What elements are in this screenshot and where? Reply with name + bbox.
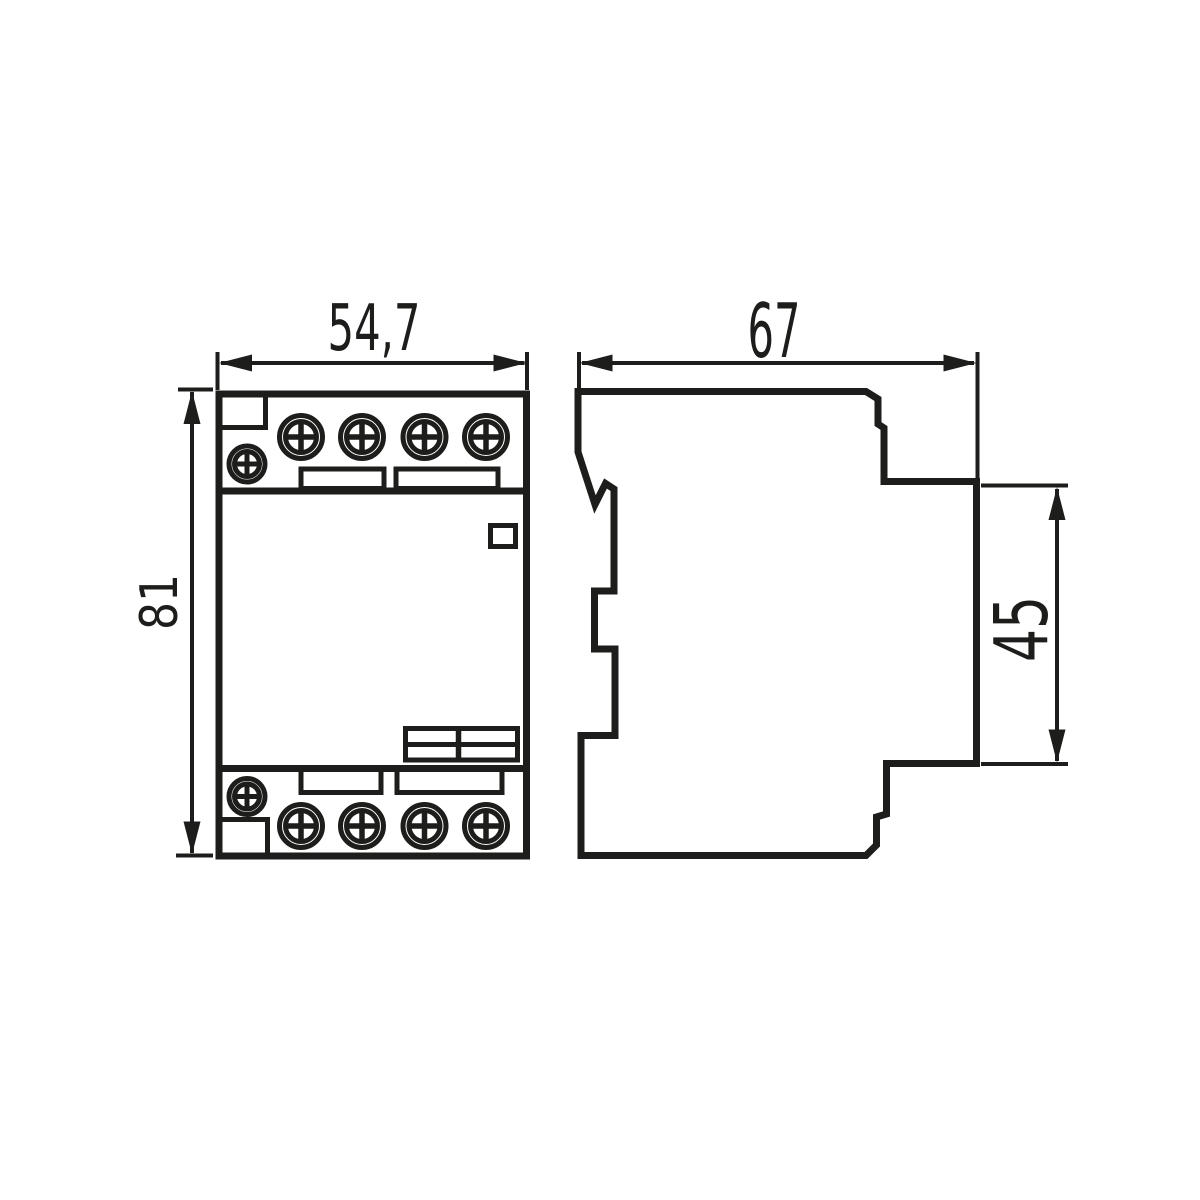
dim-label-rear-height: 45 bbox=[979, 596, 1065, 662]
side-profile-outline bbox=[578, 392, 977, 856]
top-terminal-screws bbox=[280, 416, 508, 459]
dim-label-front-height: 81 bbox=[130, 574, 190, 630]
dimension-side-depth: 67 bbox=[579, 287, 978, 481]
terminal-screw-icon bbox=[280, 416, 323, 459]
drawing-canvas: 54,7 81 67 45 bbox=[0, 0, 1200, 1200]
bottom-terminal-screws bbox=[280, 805, 508, 848]
terminal-cover-top-right bbox=[396, 469, 498, 489]
terminal-screw-icon bbox=[403, 805, 446, 848]
terminal-screw-icon bbox=[280, 805, 323, 848]
side-view bbox=[578, 392, 977, 856]
dimension-front-width: 54,7 bbox=[218, 292, 528, 390]
arrowhead-left-icon bbox=[219, 355, 252, 372]
arrowhead-left-icon bbox=[580, 355, 613, 372]
arrowhead-down-icon bbox=[184, 822, 201, 855]
technical-drawing: 54,7 81 67 45 bbox=[0, 0, 1200, 1200]
arrowhead-right-icon bbox=[494, 355, 527, 372]
small-screw-icon bbox=[229, 779, 265, 815]
dim-label-front-width: 54,7 bbox=[328, 292, 421, 366]
terminal-cover-bottom-left bbox=[301, 769, 381, 793]
terminal-screw-icon bbox=[341, 416, 384, 459]
arrowhead-up-icon bbox=[1049, 487, 1066, 520]
small-screw-icon bbox=[229, 446, 265, 482]
terminal-screw-icon bbox=[403, 416, 446, 459]
arrowhead-up-icon bbox=[184, 391, 201, 424]
corner-notch-top-left bbox=[221, 396, 266, 428]
marking-label-grid bbox=[406, 729, 518, 761]
terminal-cover-top-left bbox=[301, 469, 384, 489]
terminal-cover-bottom-right bbox=[397, 769, 502, 793]
arrowhead-down-icon bbox=[1049, 730, 1066, 763]
dimension-front-height: 81 bbox=[130, 390, 213, 856]
front-view bbox=[219, 394, 527, 856]
terminal-screw-icon bbox=[465, 805, 508, 848]
corner-notch-bottom-left bbox=[221, 820, 268, 854]
terminal-screw-icon bbox=[341, 805, 384, 848]
arrowhead-right-icon bbox=[944, 355, 977, 372]
terminal-screw-icon bbox=[465, 416, 508, 459]
indicator-window bbox=[491, 526, 516, 547]
dim-label-side-depth: 67 bbox=[748, 287, 801, 375]
dimension-rear-height: 45 bbox=[979, 486, 1068, 765]
